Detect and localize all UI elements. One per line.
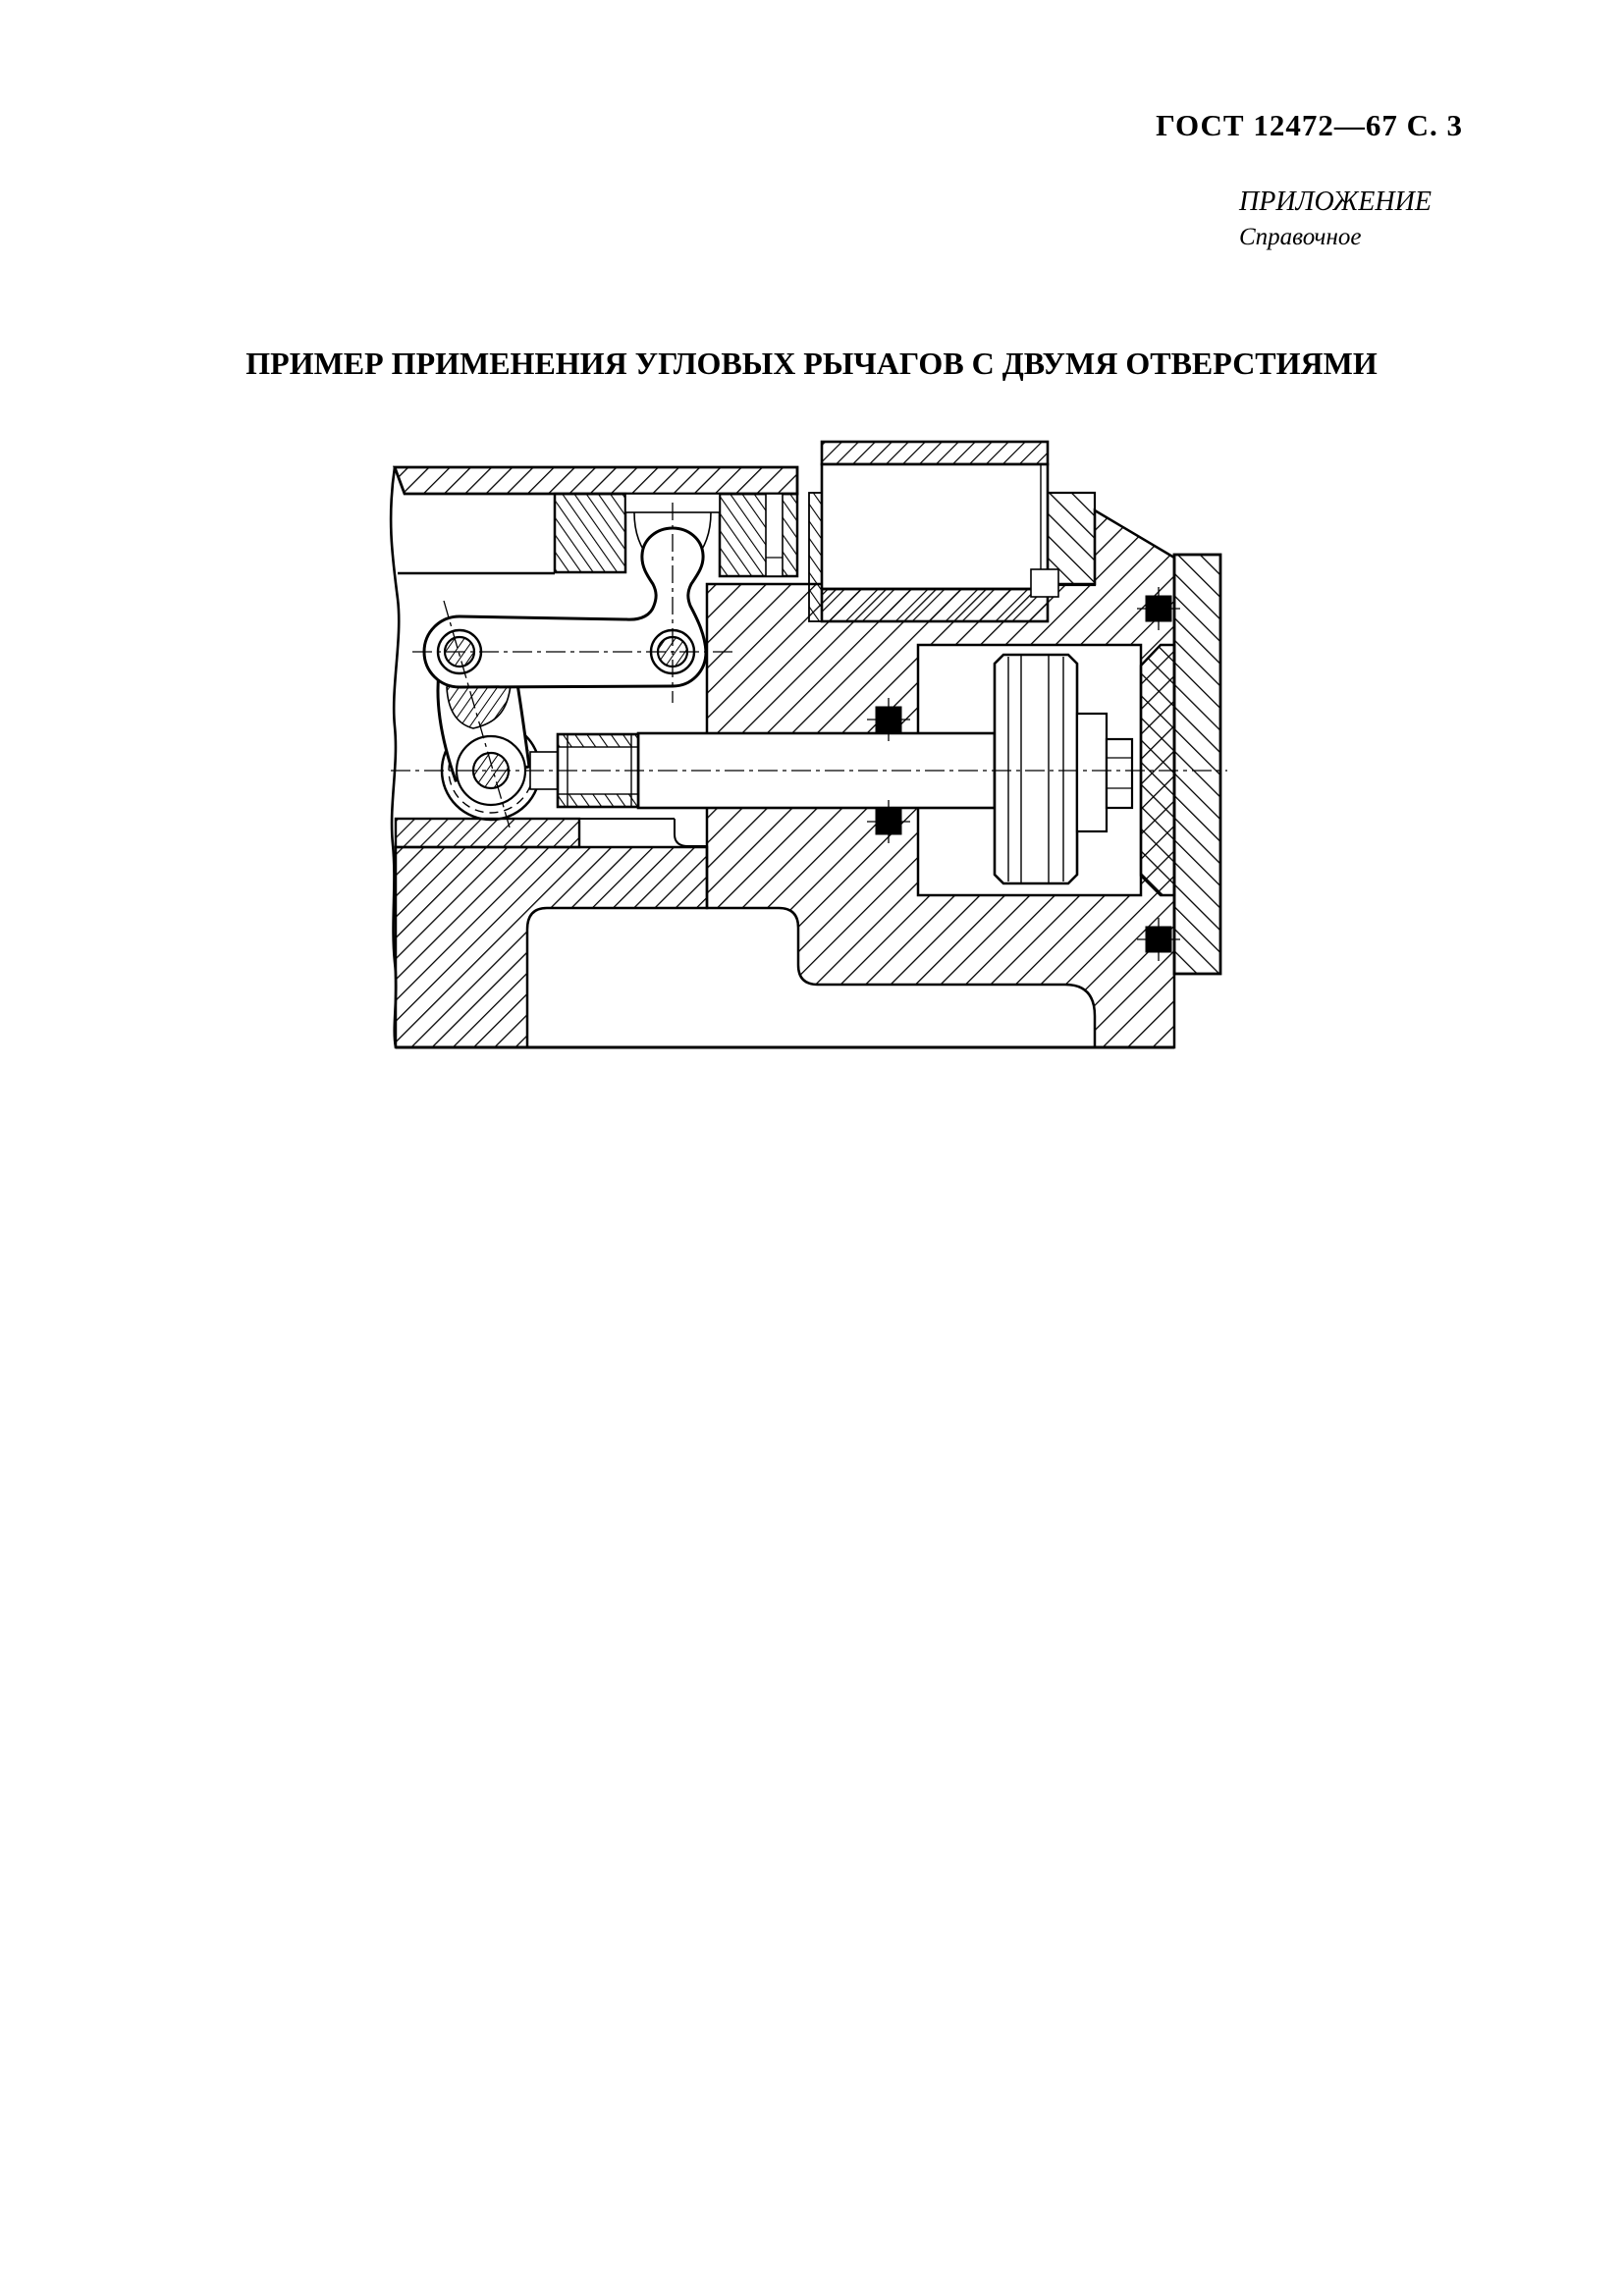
upper-housing (822, 442, 1058, 621)
page-title: ПРИМЕР ПРИМЕНЕНИЯ УГЛОВЫХ РЫЧАГОВ С ДВУМ… (0, 346, 1623, 382)
gost-header: ГОСТ 12472—67 С. 3 (1156, 108, 1463, 143)
flange-bolt (766, 494, 783, 576)
cover-plate-body (1174, 555, 1220, 974)
guide-block-left (555, 494, 625, 572)
appendix-type: Справочное (1239, 220, 1432, 255)
housing-top-band (822, 442, 1048, 464)
appendix-block: ПРИЛОЖЕНИЕ Справочное (1239, 185, 1432, 255)
housing-key-step (1031, 569, 1058, 597)
gland-column (809, 493, 822, 621)
housing-bore (822, 464, 1048, 589)
fork-guide-strip (396, 819, 579, 847)
piston (995, 655, 1077, 883)
guide-block-right (720, 494, 797, 576)
fixture-top-plate (395, 467, 797, 494)
appendix-label: ПРИЛОЖЕНИЕ (1239, 185, 1432, 220)
piston-washer (1077, 714, 1107, 831)
fixture-bottom-block (396, 847, 707, 1047)
technical-drawing (386, 435, 1230, 1055)
piston-bolt-head (1107, 739, 1132, 808)
housing-bottom-band (822, 589, 1048, 621)
document-page: ГОСТ 12472—67 С. 3 ПРИЛОЖЕНИЕ Справочное… (0, 0, 1623, 2296)
